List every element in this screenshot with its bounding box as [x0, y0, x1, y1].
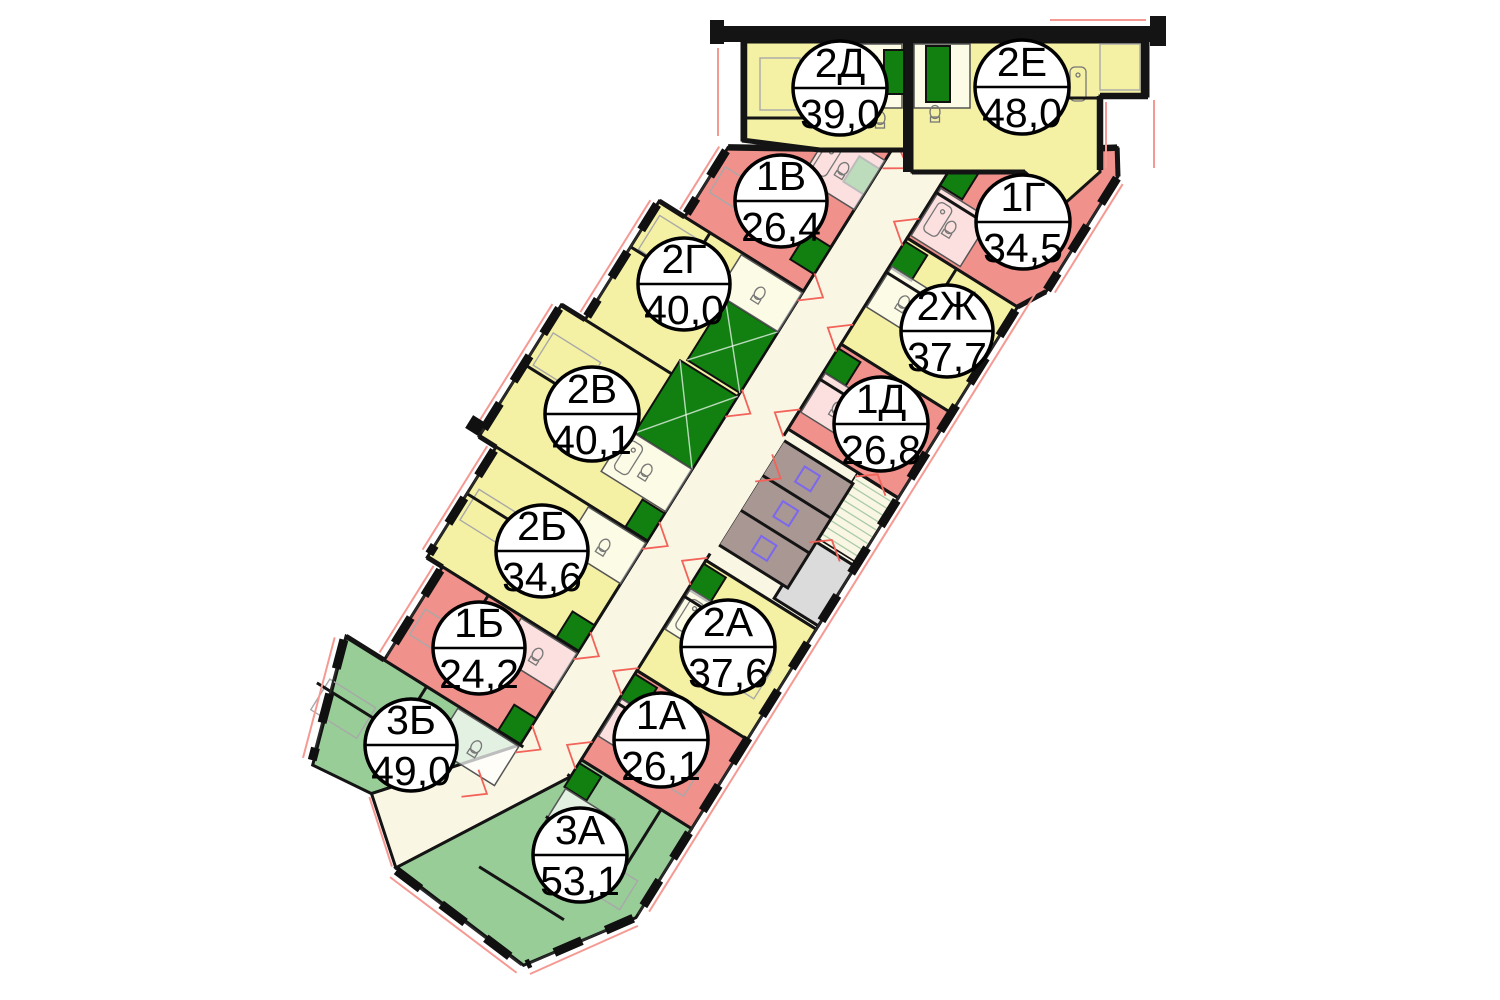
apartment-badge-2b[interactable]: 2Б 34,6 [496, 503, 588, 600]
apartment-badge-3b[interactable]: 3Б 49,0 [365, 697, 457, 794]
floorplan-canvas: 2Д 39,0 2Е 48,0 1В 26,4 1Г 34,5 2Г 40,0 … [0, 0, 1500, 1000]
apartment-label: 3А [555, 807, 606, 853]
apartment-area: 49,0 [371, 748, 451, 794]
apartment-label: 1Г [1000, 174, 1045, 220]
apartment-area: 34,5 [983, 225, 1063, 271]
apartment-badge-3a[interactable]: 3А 53,1 [533, 807, 627, 904]
apartment-label: 1Д [856, 376, 907, 422]
apartment-label: 2Д [815, 40, 866, 86]
facade-wall-stub [1150, 16, 1166, 46]
apartment-badge-2v[interactable]: 2В 40,1 [545, 366, 639, 463]
apartment-label: 2Е [997, 39, 1047, 85]
apartment-label: 2Г [661, 236, 706, 282]
apartment-badge-2e[interactable]: 2Е 48,0 [975, 39, 1069, 136]
floorplan-page: 2Д 39,0 2Е 48,0 1В 26,4 1Г 34,5 2Г 40,0 … [0, 0, 1500, 1000]
apartment-badge-1a[interactable]: 1А 26,1 [614, 692, 708, 789]
apartment-area: 40,0 [644, 287, 724, 333]
apartment-label: 1А [636, 692, 687, 738]
facade-wall-stub [710, 20, 724, 44]
apartment-badge-1d[interactable]: 1Д 26,8 [834, 376, 928, 473]
apartment-label: 1В [756, 153, 806, 199]
apartment-area: 39,0 [800, 91, 880, 137]
apartment-badge-1g[interactable]: 1Г 34,5 [976, 174, 1070, 271]
apartment-label: 1Б [454, 600, 504, 646]
apartment-label: 2Б [517, 503, 567, 549]
top-facade-wall [720, 26, 1158, 42]
apartment-area: 37,6 [688, 650, 768, 696]
apartment-label: 2Ж [917, 283, 978, 329]
apartment-label: 3Б [386, 697, 436, 743]
apartment-label: 2В [567, 366, 617, 412]
apartment-area: 48,0 [982, 90, 1062, 136]
apartment-area: 34,6 [502, 554, 582, 600]
apartment-badge-2d[interactable]: 2Д 39,0 [793, 40, 887, 137]
apartment-area: 26,1 [621, 743, 701, 789]
apartment-area: 40,1 [552, 417, 632, 463]
apartment-area: 53,1 [540, 858, 620, 904]
apartment-area: 24,2 [439, 651, 519, 697]
apartment-area: 26,4 [741, 204, 821, 250]
apartment-label: 2А [703, 599, 754, 645]
apartment-badge-1b[interactable]: 1Б 24,2 [433, 600, 525, 697]
apartment-badge-2a[interactable]: 2А 37,6 [681, 599, 775, 696]
apartment-area: 26,8 [841, 427, 921, 473]
apartment-badge-2zh[interactable]: 2Ж 37,7 [901, 283, 993, 380]
apartment-badge-2g[interactable]: 2Г 40,0 [638, 236, 730, 333]
apartment-area: 37,7 [907, 334, 987, 380]
apartment-badge-1v[interactable]: 1В 26,4 [735, 153, 827, 250]
